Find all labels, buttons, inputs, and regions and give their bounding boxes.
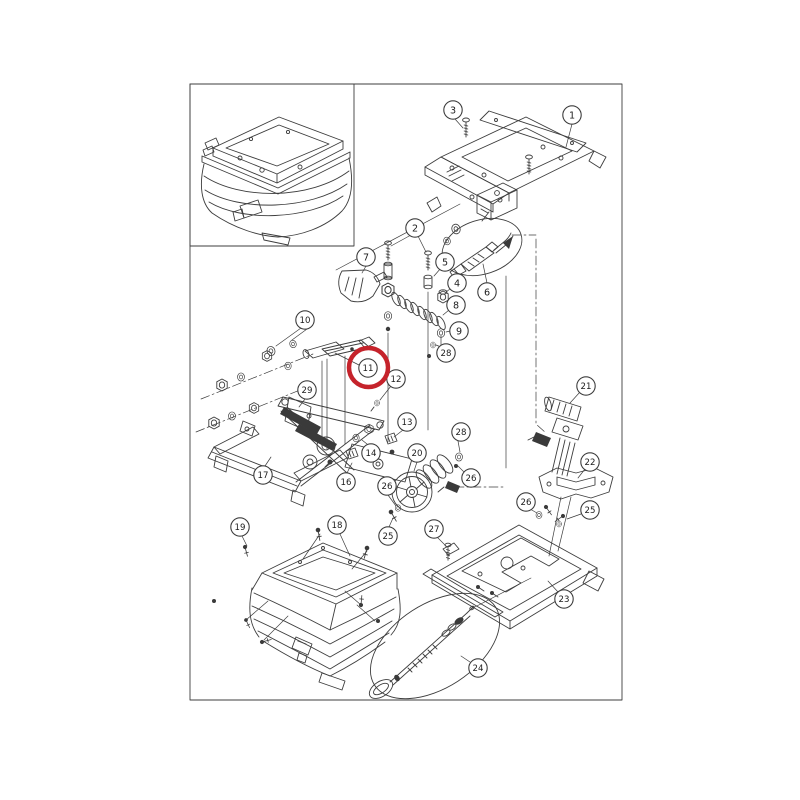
parts-diagram-canvas: 3127546810928111221291328201422172616262…: [0, 0, 800, 800]
svg-text:27: 27: [429, 525, 440, 535]
svg-text:13: 13: [402, 418, 413, 428]
svg-text:14: 14: [366, 449, 377, 459]
svg-text:16: 16: [341, 478, 352, 488]
svg-text:25: 25: [585, 506, 596, 516]
part-lower-frame-23: [423, 505, 604, 629]
callout-10: 10: [296, 311, 314, 329]
callout-3: 3: [444, 101, 462, 119]
svg-text:25: 25: [383, 532, 394, 542]
callout-4: 4: [448, 274, 466, 292]
callout-26: 26: [517, 493, 535, 511]
part-top-plate: [425, 111, 606, 212]
svg-text:28: 28: [441, 349, 452, 359]
callout-28: 28: [437, 344, 455, 362]
callout-19: 19: [231, 518, 249, 536]
part-tube-11: [266, 337, 397, 444]
svg-text:9: 9: [456, 326, 462, 337]
svg-text:18: 18: [332, 521, 343, 531]
parts-diagram-page: 3127546810928111221291328201422172616262…: [0, 0, 800, 800]
callout-1: 1: [563, 106, 581, 124]
callout-18: 18: [328, 516, 346, 534]
callout-25: 25: [379, 527, 397, 545]
callout-26: 26: [462, 469, 480, 487]
part-bracket-22: [539, 468, 613, 499]
callout-21: 21: [577, 377, 595, 395]
svg-text:24: 24: [473, 664, 484, 674]
svg-text:7: 7: [363, 252, 369, 263]
callout-29: 29: [298, 381, 316, 399]
svg-text:26: 26: [466, 474, 477, 484]
callout-2: 2: [406, 219, 424, 237]
callout-23: 23: [555, 590, 573, 608]
part-bracket-7: [339, 270, 387, 302]
svg-text:17: 17: [258, 471, 269, 481]
callout-5: 5: [436, 253, 454, 271]
svg-text:19: 19: [235, 523, 246, 533]
svg-text:26: 26: [382, 482, 393, 492]
svg-text:10: 10: [300, 316, 311, 326]
svg-text:8: 8: [453, 300, 459, 311]
callout-27: 27: [425, 520, 443, 538]
svg-text:20: 20: [412, 449, 423, 459]
callout-14: 14: [362, 444, 380, 462]
svg-text:1: 1: [569, 110, 575, 121]
svg-text:12: 12: [391, 375, 402, 385]
left-fasteners: [209, 351, 291, 429]
callout-11: 11: [359, 359, 377, 377]
callout-13: 13: [398, 413, 416, 431]
svg-text:26: 26: [521, 498, 532, 508]
callout-22: 22: [581, 453, 599, 471]
callout-16: 16: [337, 473, 355, 491]
part-handle-21: [528, 396, 583, 476]
callout-9: 9: [450, 322, 468, 340]
callout-26: 26: [378, 477, 396, 495]
callout-25: 25: [581, 501, 599, 519]
callout-24: 24: [469, 659, 487, 677]
svg-text:28: 28: [456, 428, 467, 438]
callout-17: 17: [254, 466, 272, 484]
part-roller-20: [387, 452, 463, 521]
svg-text:2: 2: [412, 223, 418, 234]
callout-28: 28: [452, 423, 470, 441]
callout-7: 7: [357, 248, 375, 266]
inset-assembled-unit: [201, 117, 351, 641]
svg-text:21: 21: [581, 382, 592, 392]
svg-text:3: 3: [450, 105, 456, 116]
svg-text:5: 5: [442, 257, 448, 268]
svg-text:4: 4: [454, 278, 460, 289]
part-bellows-18: [212, 527, 400, 690]
svg-text:23: 23: [559, 595, 570, 605]
detail-ellipse-cable: [435, 209, 530, 286]
callout-6: 6: [478, 283, 496, 301]
svg-text:6: 6: [484, 287, 490, 298]
svg-text:29: 29: [302, 386, 313, 396]
svg-text:11: 11: [363, 364, 374, 374]
fasteners-2-4-5: [382, 241, 448, 331]
callout-20: 20: [408, 444, 426, 462]
svg-text:22: 22: [585, 458, 596, 468]
callout-8: 8: [447, 296, 465, 314]
